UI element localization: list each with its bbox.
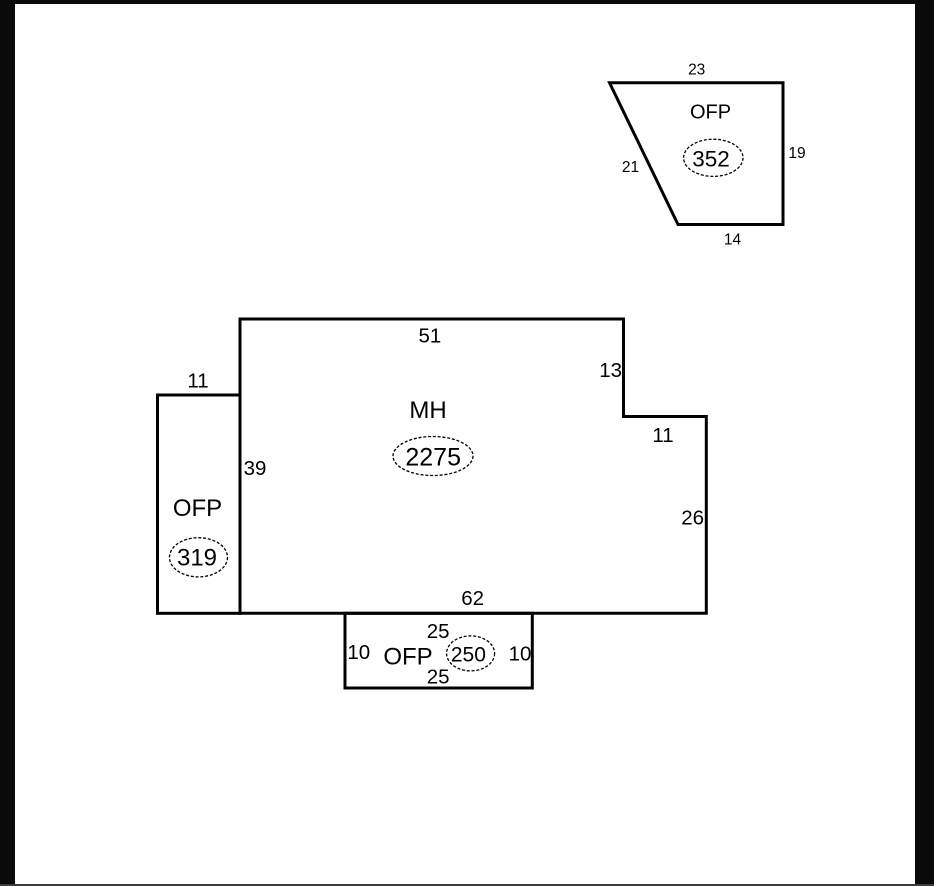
svg-text:19: 19 bbox=[788, 145, 805, 162]
svg-text:OFP: OFP bbox=[690, 101, 731, 123]
svg-text:13: 13 bbox=[599, 359, 622, 382]
svg-text:21: 21 bbox=[622, 159, 639, 176]
svg-text:11: 11 bbox=[652, 424, 673, 447]
svg-text:62: 62 bbox=[461, 587, 484, 610]
svg-text:51: 51 bbox=[418, 325, 441, 348]
svg-text:25: 25 bbox=[427, 620, 450, 643]
svg-text:2275: 2275 bbox=[405, 443, 461, 471]
svg-text:11: 11 bbox=[187, 370, 208, 393]
svg-text:23: 23 bbox=[688, 62, 705, 79]
svg-text:39: 39 bbox=[244, 457, 267, 480]
svg-text:10: 10 bbox=[509, 643, 532, 666]
svg-text:25: 25 bbox=[427, 665, 450, 688]
svg-text:250: 250 bbox=[451, 644, 486, 667]
svg-text:OFP: OFP bbox=[173, 495, 222, 522]
svg-text:OFP: OFP bbox=[383, 643, 432, 670]
svg-text:26: 26 bbox=[681, 507, 704, 530]
svg-text:319: 319 bbox=[177, 544, 217, 571]
svg-text:352: 352 bbox=[692, 147, 730, 172]
svg-text:14: 14 bbox=[724, 232, 742, 249]
svg-text:10: 10 bbox=[347, 641, 370, 664]
svg-text:MH: MH bbox=[409, 397, 446, 424]
